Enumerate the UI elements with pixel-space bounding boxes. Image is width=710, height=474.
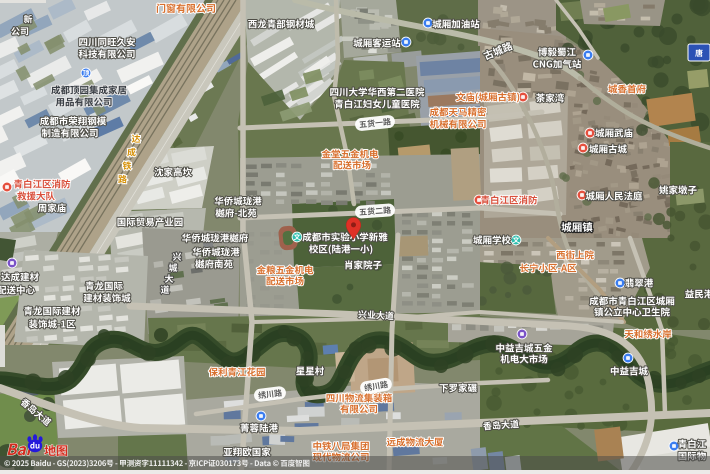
svg-text:城厢学校: 城厢学校: [473, 233, 512, 247]
svg-text:菁蓉陆港: 菁蓉陆港: [240, 421, 279, 435]
svg-text:青白江区消防: 青白江区消防: [480, 193, 538, 207]
svg-text:翡翠港: 翡翠港: [625, 276, 654, 290]
svg-text:校区(陆港一小): 校区(陆港一小): [309, 242, 373, 256]
svg-text:城厢古城: 城厢古城: [589, 142, 628, 156]
svg-text:路: 路: [118, 173, 127, 186]
svg-text:地图: 地图: [44, 442, 68, 459]
svg-text:装饰城-1区: 装饰城-1区: [28, 317, 76, 331]
svg-text:城厢客运站: 城厢客运站: [353, 36, 401, 50]
svg-text:城厢镇: 城厢镇: [561, 220, 593, 235]
svg-text:配送市场: 配送市场: [266, 274, 305, 288]
svg-text:du: du: [30, 441, 40, 452]
svg-text:姚家墩子: 姚家墩子: [659, 183, 698, 197]
svg-text:星星村: 星星村: [296, 364, 325, 378]
svg-text:成: 成: [127, 146, 136, 159]
svg-text:达: 达: [131, 132, 140, 145]
svg-text:顶: 顶: [83, 69, 90, 79]
svg-text:城厢加油站: 城厢加油站: [432, 17, 480, 31]
svg-text:下罗家碾: 下罗家碾: [439, 381, 478, 395]
svg-text:制造有限公司: 制造有限公司: [41, 126, 98, 140]
svg-text:有限公司: 有限公司: [340, 402, 378, 416]
svg-text:科技有限公司: 科技有限公司: [78, 47, 135, 61]
svg-text:五货二路: 五货二路: [359, 205, 392, 218]
svg-text:香岛大道: 香岛大道: [483, 417, 520, 432]
svg-text:公司: 公司: [11, 24, 29, 37]
svg-text:沈家高坎: 沈家高坎: [154, 165, 193, 179]
svg-text:远成物流大厦: 远成物流大厦: [386, 435, 444, 449]
svg-text:达成建材: 达成建材: [1, 270, 40, 284]
svg-text:周家庙: 周家庙: [38, 201, 67, 215]
svg-text:道: 道: [160, 283, 169, 296]
svg-text:文: 文: [513, 236, 520, 246]
svg-text:文: 文: [294, 233, 301, 243]
svg-text:配送中心: 配送中心: [0, 283, 35, 297]
svg-text:城厢人民法庭: 城厢人民法庭: [585, 189, 643, 203]
svg-text:茶家湾: 茶家湾: [536, 91, 565, 105]
svg-text:樾府南苑: 樾府南苑: [195, 257, 234, 271]
svg-text:用品有限公司: 用品有限公司: [55, 95, 112, 109]
svg-text:配送市场: 配送市场: [333, 158, 372, 172]
svg-text:华侨城珑港樾府: 华侨城珑港樾府: [182, 231, 249, 245]
svg-text:机电大市场: 机电大市场: [500, 352, 548, 366]
svg-text:文庙(城厢古镇): 文庙(城厢古镇): [456, 90, 520, 104]
svg-text:益民港: 益民港: [685, 287, 710, 301]
svg-text:天和绣水岸: 天和绣水岸: [624, 327, 672, 341]
svg-text:城厢武庙: 城厢武庙: [595, 126, 633, 140]
svg-text:国际贸易产业园: 国际贸易产业园: [117, 215, 184, 229]
svg-text:城香首府: 城香首府: [608, 82, 647, 96]
svg-text:青龙国际建材: 青龙国际建材: [23, 304, 81, 318]
svg-text:中益吉城: 中益吉城: [610, 364, 649, 378]
svg-text:兴业大道: 兴业大道: [358, 307, 395, 322]
svg-text:西街上院: 西街上院: [556, 248, 595, 262]
svg-text:青白江妇女儿童医院: 青白江妇女儿童医院: [334, 97, 420, 111]
svg-text:铁: 铁: [122, 159, 131, 172]
svg-text:© 2025 Baidu - GS(2023)3206号 -: © 2025 Baidu - GS(2023)3206号 - 甲测资字11111…: [4, 458, 310, 469]
svg-text:建材装饰城: 建材装饰城: [83, 291, 131, 305]
svg-text:西龙青部钢材城: 西龙青部钢材城: [248, 17, 315, 31]
svg-text:唐: 唐: [695, 48, 703, 59]
svg-text:CNG加气站: CNG加气站: [533, 57, 582, 71]
svg-text:镇公立中心卫生院: 镇公立中心卫生院: [594, 305, 671, 319]
svg-text:肖家院子: 肖家院子: [344, 258, 383, 272]
svg-text:门窗有限公司: 门窗有限公司: [156, 0, 216, 15]
svg-text:樾府-北苑: 樾府-北苑: [215, 206, 257, 220]
svg-text:保利青江花园: 保利青江花园: [208, 365, 265, 379]
svg-text:长宁小区-A区: 长宁小区-A区: [519, 261, 577, 275]
svg-text:机械有限公司: 机械有限公司: [429, 117, 486, 131]
